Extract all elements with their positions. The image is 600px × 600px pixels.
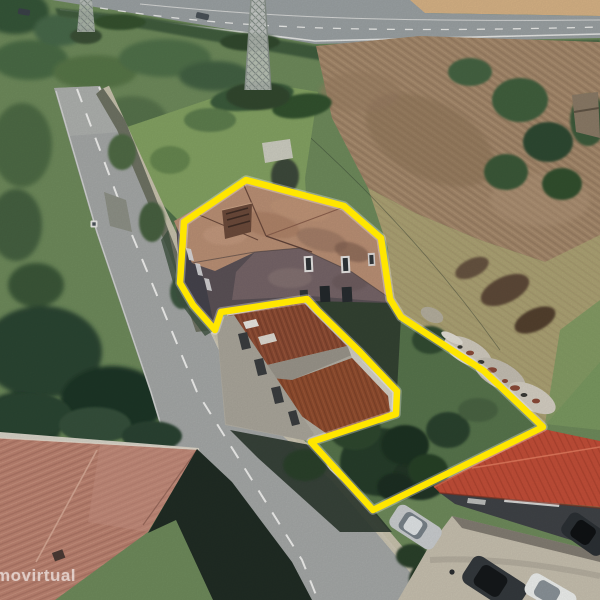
aerial-photo: movirtual [0, 0, 600, 600]
aerial-photo-canvas [0, 0, 600, 600]
